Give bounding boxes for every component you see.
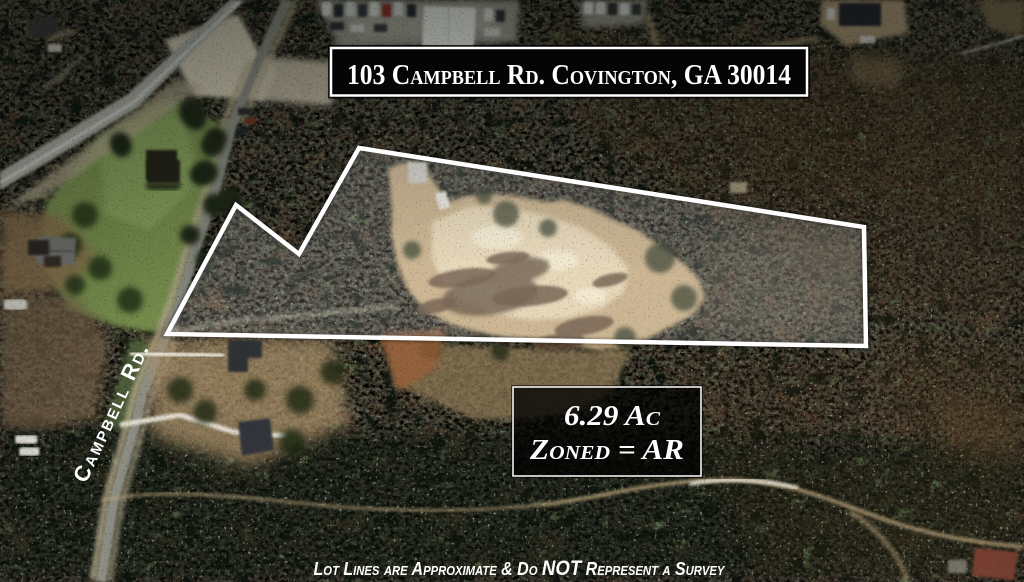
svg-text:Zoned = AR: Zoned = AR — [529, 434, 684, 466]
svg-text:Lot Lines are Approximate & Do: Lot Lines are Approximate & Do NOT Repre… — [314, 557, 726, 580]
svg-text:103 Campbell Rd. Covington, GA: 103 Campbell Rd. Covington, GA 30014 — [347, 60, 791, 91]
svg-text:6.29 Ac: 6.29 Ac — [564, 400, 661, 432]
